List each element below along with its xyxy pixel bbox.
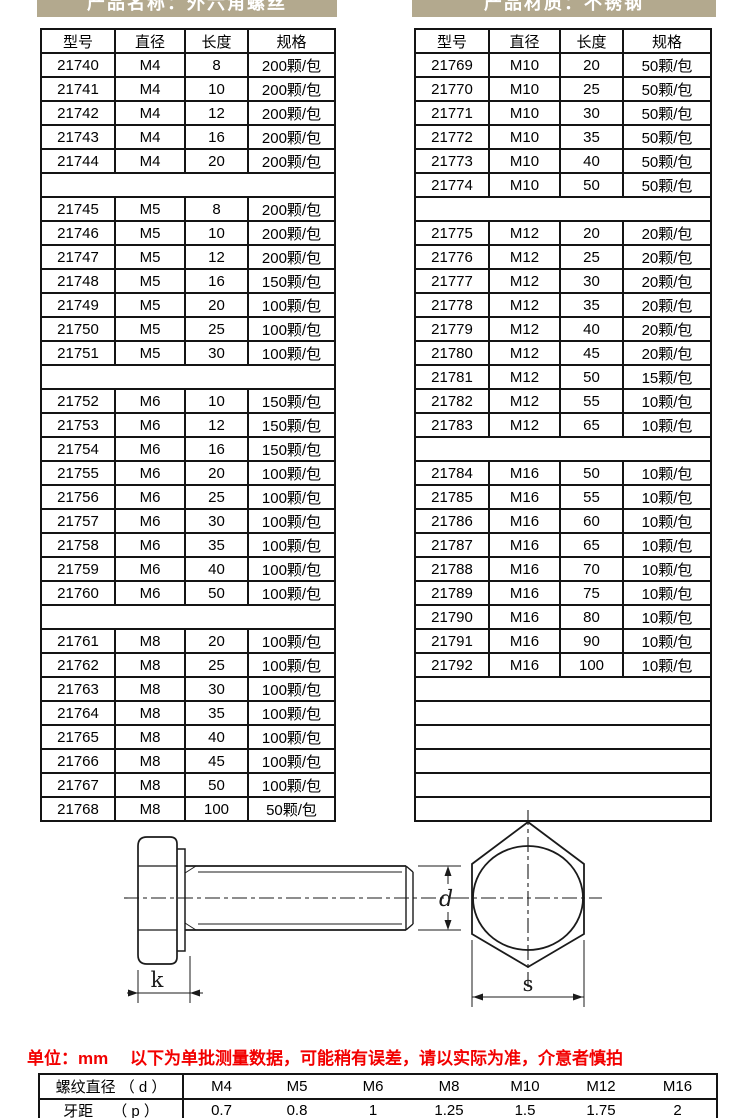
d-arrow-top bbox=[445, 866, 452, 876]
table-row: 21777M123020颗/包 bbox=[415, 269, 711, 293]
cell: 螺纹直径 （ d ） bbox=[39, 1074, 183, 1099]
cell: 0.8 bbox=[259, 1099, 335, 1118]
cell: M12 bbox=[489, 365, 560, 389]
cell: 21753 bbox=[41, 413, 115, 437]
cell: 30 bbox=[185, 509, 248, 533]
table-row: 21783M126510颗/包 bbox=[415, 413, 711, 437]
cell: 100颗/包 bbox=[248, 533, 335, 557]
cell: M6 bbox=[115, 557, 185, 581]
cell: 21759 bbox=[41, 557, 115, 581]
cell: M16 bbox=[489, 629, 560, 653]
table-row: 21763M830100颗/包 bbox=[41, 677, 335, 701]
cell: M12 bbox=[489, 317, 560, 341]
cell: 21772 bbox=[415, 125, 489, 149]
table-row: 21746M510200颗/包 bbox=[41, 221, 335, 245]
cell: 100颗/包 bbox=[248, 461, 335, 485]
column-header: 型号 bbox=[41, 29, 115, 53]
spacer-row bbox=[415, 437, 711, 461]
cell: 21790 bbox=[415, 605, 489, 629]
cell: 100颗/包 bbox=[248, 581, 335, 605]
column-header: 型号 bbox=[415, 29, 489, 53]
spacer-row bbox=[415, 701, 711, 725]
cell: 150颗/包 bbox=[248, 389, 335, 413]
cell: M6 bbox=[115, 533, 185, 557]
cell: M10 bbox=[489, 173, 560, 197]
cell: 150颗/包 bbox=[248, 413, 335, 437]
product-table-right: 型号直径长度规格21769M102050颗/包21770M102550颗/包21… bbox=[414, 28, 712, 822]
cell: 8 bbox=[185, 197, 248, 221]
cell: 21788 bbox=[415, 557, 489, 581]
cell: M16 bbox=[639, 1074, 717, 1099]
product-spec-sheet: 产品名称：外六角螺丝 产品材质：不锈钢 型号直径长度规格21740M48200颗… bbox=[0, 0, 750, 1118]
cell: M16 bbox=[489, 509, 560, 533]
cell: M6 bbox=[335, 1074, 411, 1099]
product-name-text: 产品名称：外六角螺丝 bbox=[87, 0, 287, 13]
cell: 30 bbox=[560, 101, 623, 125]
cell: M8 bbox=[411, 1074, 487, 1099]
cell: M4 bbox=[183, 1074, 259, 1099]
cell: 100颗/包 bbox=[248, 701, 335, 725]
table-row: 牙距 （ p ）0.70.811.251.51.752 bbox=[39, 1099, 717, 1118]
cell: 150颗/包 bbox=[248, 269, 335, 293]
column-header: 规格 bbox=[248, 29, 335, 53]
cell: M4 bbox=[115, 101, 185, 125]
cell: 21751 bbox=[41, 341, 115, 365]
cell: 20 bbox=[560, 53, 623, 77]
cell: 21764 bbox=[41, 701, 115, 725]
cell: 21785 bbox=[415, 485, 489, 509]
cell: 21774 bbox=[415, 173, 489, 197]
cell: 100颗/包 bbox=[248, 509, 335, 533]
table-row: 21748M516150颗/包 bbox=[41, 269, 335, 293]
cell: 50颗/包 bbox=[623, 149, 711, 173]
cell: 12 bbox=[185, 101, 248, 125]
cell: M10 bbox=[489, 77, 560, 101]
cell: M12 bbox=[489, 293, 560, 317]
cell: 21783 bbox=[415, 413, 489, 437]
cell: 10颗/包 bbox=[623, 653, 711, 677]
cell: M8 bbox=[115, 749, 185, 773]
cell: 10 bbox=[185, 389, 248, 413]
cell: M4 bbox=[115, 125, 185, 149]
table-row: 21762M825100颗/包 bbox=[41, 653, 335, 677]
cell: 1.5 bbox=[487, 1099, 563, 1118]
cell: 21778 bbox=[415, 293, 489, 317]
table-row: 21773M104050颗/包 bbox=[415, 149, 711, 173]
cell: 21756 bbox=[41, 485, 115, 509]
spacer-row bbox=[41, 365, 335, 389]
table-row: 21788M167010颗/包 bbox=[415, 557, 711, 581]
dimension-label-d: d bbox=[439, 887, 453, 912]
spacer-cell bbox=[415, 701, 711, 725]
cell: M12 bbox=[489, 221, 560, 245]
cell: 200颗/包 bbox=[248, 149, 335, 173]
cell: M4 bbox=[115, 53, 185, 77]
table-row: 21781M125015颗/包 bbox=[415, 365, 711, 389]
cell: M16 bbox=[489, 653, 560, 677]
cell: M5 bbox=[115, 341, 185, 365]
table-row: 21769M102050颗/包 bbox=[415, 53, 711, 77]
cell: 21760 bbox=[41, 581, 115, 605]
cell: 21750 bbox=[41, 317, 115, 341]
table-row: 21760M650100颗/包 bbox=[41, 581, 335, 605]
cell: 25 bbox=[185, 317, 248, 341]
cell: 21746 bbox=[41, 221, 115, 245]
table-row: 21759M640100颗/包 bbox=[41, 557, 335, 581]
cell: 21786 bbox=[415, 509, 489, 533]
table-row: 21784M165010颗/包 bbox=[415, 461, 711, 485]
cell: 21775 bbox=[415, 221, 489, 245]
cell: 35 bbox=[185, 701, 248, 725]
cell: 50 bbox=[560, 365, 623, 389]
cell: M16 bbox=[489, 461, 560, 485]
cell: 21754 bbox=[41, 437, 115, 461]
table-row: 21752M610150颗/包 bbox=[41, 389, 335, 413]
cell: M5 bbox=[259, 1074, 335, 1099]
table-row: 21774M105050颗/包 bbox=[415, 173, 711, 197]
table-row: 21776M122520颗/包 bbox=[415, 245, 711, 269]
spacer-cell bbox=[41, 605, 335, 629]
table-row: 21780M124520颗/包 bbox=[415, 341, 711, 365]
cell: 50颗/包 bbox=[623, 77, 711, 101]
cell: M12 bbox=[489, 389, 560, 413]
cell: 20颗/包 bbox=[623, 341, 711, 365]
cell: 牙距 （ p ） bbox=[39, 1099, 183, 1118]
cell: M10 bbox=[487, 1074, 563, 1099]
cell: 21780 bbox=[415, 341, 489, 365]
table-row: 21756M625100颗/包 bbox=[41, 485, 335, 509]
product-name-banner: 产品名称：外六角螺丝 bbox=[37, 0, 337, 17]
cell: 21770 bbox=[415, 77, 489, 101]
table-row: 21743M416200颗/包 bbox=[41, 125, 335, 149]
dimension-label-k: k bbox=[151, 968, 164, 992]
thread-spec-table: 螺纹直径 （ d ）M4M5M6M8M10M12M16牙距 （ p ）0.70.… bbox=[38, 1073, 718, 1118]
bolt-head-outline bbox=[138, 837, 177, 964]
cell: 25 bbox=[560, 245, 623, 269]
cell: 100颗/包 bbox=[248, 749, 335, 773]
cell: 21789 bbox=[415, 581, 489, 605]
cell: 100颗/包 bbox=[248, 317, 335, 341]
cell: 21743 bbox=[41, 125, 115, 149]
table-row: 螺纹直径 （ d ）M4M5M6M8M10M12M16 bbox=[39, 1074, 717, 1099]
table-row: 21790M168010颗/包 bbox=[415, 605, 711, 629]
cell: M12 bbox=[489, 245, 560, 269]
table-row: 21741M410200颗/包 bbox=[41, 77, 335, 101]
cell: 21765 bbox=[41, 725, 115, 749]
cell: 100颗/包 bbox=[248, 485, 335, 509]
cell: 45 bbox=[185, 749, 248, 773]
cell: 10颗/包 bbox=[623, 509, 711, 533]
spacer-cell bbox=[415, 749, 711, 773]
cell: M10 bbox=[489, 53, 560, 77]
spacer-row bbox=[41, 605, 335, 629]
cell: 100颗/包 bbox=[248, 677, 335, 701]
spacer-row bbox=[415, 197, 711, 221]
cell: 20颗/包 bbox=[623, 221, 711, 245]
cell: 21763 bbox=[41, 677, 115, 701]
header-row: 型号直径长度规格 bbox=[41, 29, 335, 53]
table-row: 21779M124020颗/包 bbox=[415, 317, 711, 341]
bolt-head-front-view: s bbox=[454, 810, 602, 1007]
cell: 65 bbox=[560, 413, 623, 437]
cell: M6 bbox=[115, 581, 185, 605]
table-row: 21745M58200颗/包 bbox=[41, 197, 335, 221]
cell: M4 bbox=[115, 149, 185, 173]
cell: 20颗/包 bbox=[623, 317, 711, 341]
bolt-side-view: d k bbox=[124, 837, 466, 1003]
table-row: 21772M103550颗/包 bbox=[415, 125, 711, 149]
cell: M5 bbox=[115, 269, 185, 293]
cell: 10颗/包 bbox=[623, 581, 711, 605]
cell: 20 bbox=[185, 629, 248, 653]
cell: 21787 bbox=[415, 533, 489, 557]
table-row: 21750M525100颗/包 bbox=[41, 317, 335, 341]
table-row: 21764M835100颗/包 bbox=[41, 701, 335, 725]
cell: 150颗/包 bbox=[248, 437, 335, 461]
table-row: 21786M166010颗/包 bbox=[415, 509, 711, 533]
cell: 21773 bbox=[415, 149, 489, 173]
table-row: 21785M165510颗/包 bbox=[415, 485, 711, 509]
cell: M12 bbox=[489, 413, 560, 437]
cell: M5 bbox=[115, 197, 185, 221]
cell: 21752 bbox=[41, 389, 115, 413]
cell: M16 bbox=[489, 485, 560, 509]
cell: 50颗/包 bbox=[623, 101, 711, 125]
cell: 50颗/包 bbox=[623, 173, 711, 197]
table-row: 21755M620100颗/包 bbox=[41, 461, 335, 485]
cell: M6 bbox=[115, 413, 185, 437]
cell: 20 bbox=[185, 149, 248, 173]
cell: 200颗/包 bbox=[248, 53, 335, 77]
cell: 100颗/包 bbox=[248, 653, 335, 677]
product-material-banner: 产品材质：不锈钢 bbox=[412, 0, 716, 17]
table-row: 21742M412200颗/包 bbox=[41, 101, 335, 125]
cell: M6 bbox=[115, 437, 185, 461]
cell: 20 bbox=[185, 461, 248, 485]
cell: 75 bbox=[560, 581, 623, 605]
cell: 1.75 bbox=[563, 1099, 639, 1118]
cell: 21757 bbox=[41, 509, 115, 533]
spacer-row bbox=[415, 725, 711, 749]
cell: 200颗/包 bbox=[248, 221, 335, 245]
cell: 21745 bbox=[41, 197, 115, 221]
spacer-cell bbox=[415, 437, 711, 461]
cell: 10颗/包 bbox=[623, 389, 711, 413]
cell: 10颗/包 bbox=[623, 533, 711, 557]
cell: M4 bbox=[115, 77, 185, 101]
cell: M8 bbox=[115, 725, 185, 749]
dimension-label-s: s bbox=[523, 972, 534, 996]
cell: 40 bbox=[185, 557, 248, 581]
cell: 10颗/包 bbox=[623, 629, 711, 653]
cell: 200颗/包 bbox=[248, 245, 335, 269]
cell: 100颗/包 bbox=[248, 725, 335, 749]
cell: M12 bbox=[489, 269, 560, 293]
table-row: 21753M612150颗/包 bbox=[41, 413, 335, 437]
cell: 50颗/包 bbox=[623, 53, 711, 77]
table-row: 21787M166510颗/包 bbox=[415, 533, 711, 557]
table-row: 21770M102550颗/包 bbox=[415, 77, 711, 101]
cell: 35 bbox=[560, 125, 623, 149]
cell: M6 bbox=[115, 389, 185, 413]
cell: 16 bbox=[185, 125, 248, 149]
d-arrow-bottom bbox=[445, 920, 452, 930]
spacer-cell bbox=[415, 677, 711, 701]
cell: 20颗/包 bbox=[623, 245, 711, 269]
cell: 16 bbox=[185, 269, 248, 293]
cell: 10颗/包 bbox=[623, 557, 711, 581]
cell: 25 bbox=[560, 77, 623, 101]
cell: 21779 bbox=[415, 317, 489, 341]
s-arrow-right bbox=[573, 994, 583, 1001]
k-arrow-left bbox=[128, 990, 138, 997]
cell: 70 bbox=[560, 557, 623, 581]
cell: M10 bbox=[489, 101, 560, 125]
table-row: 21775M122020颗/包 bbox=[415, 221, 711, 245]
cell: 21748 bbox=[41, 269, 115, 293]
cell: 10颗/包 bbox=[623, 413, 711, 437]
cell: M6 bbox=[115, 509, 185, 533]
cell: 21791 bbox=[415, 629, 489, 653]
table-row: 21792M1610010颗/包 bbox=[415, 653, 711, 677]
cell: 25 bbox=[185, 653, 248, 677]
cell: 200颗/包 bbox=[248, 101, 335, 125]
spacer-cell bbox=[415, 725, 711, 749]
cell: 2 bbox=[639, 1099, 717, 1118]
cell: M6 bbox=[115, 485, 185, 509]
cell: 21755 bbox=[41, 461, 115, 485]
cell: 21777 bbox=[415, 269, 489, 293]
cell: 35 bbox=[560, 293, 623, 317]
cell: 21758 bbox=[41, 533, 115, 557]
cell: 1.25 bbox=[411, 1099, 487, 1118]
cell: 16 bbox=[185, 437, 248, 461]
table-row: 21789M167510颗/包 bbox=[415, 581, 711, 605]
cell: 8 bbox=[185, 53, 248, 77]
column-header: 直径 bbox=[489, 29, 560, 53]
cell: 80 bbox=[560, 605, 623, 629]
cell: 55 bbox=[560, 389, 623, 413]
cell: 1 bbox=[335, 1099, 411, 1118]
measurement-note: 单位：mm 以下为单批测量数据，可能稍有误差，请以实际为准，介意者慎拍 bbox=[27, 1044, 727, 1069]
cell: 21766 bbox=[41, 749, 115, 773]
k-arrow-right bbox=[190, 990, 200, 997]
cell: 21782 bbox=[415, 389, 489, 413]
cell: M6 bbox=[115, 461, 185, 485]
table-row: 21757M630100颗/包 bbox=[41, 509, 335, 533]
table-row: 21791M169010颗/包 bbox=[415, 629, 711, 653]
table-row: 21765M840100颗/包 bbox=[41, 725, 335, 749]
spacer-cell bbox=[415, 197, 711, 221]
cell: 21776 bbox=[415, 245, 489, 269]
cell: 100颗/包 bbox=[248, 341, 335, 365]
cell: M16 bbox=[489, 533, 560, 557]
table-row: 21766M845100颗/包 bbox=[41, 749, 335, 773]
cell: 21784 bbox=[415, 461, 489, 485]
cell: 65 bbox=[560, 533, 623, 557]
cell: 40 bbox=[560, 317, 623, 341]
cell: 30 bbox=[560, 269, 623, 293]
cell: 55 bbox=[560, 485, 623, 509]
cell: 40 bbox=[185, 725, 248, 749]
cell: 12 bbox=[185, 413, 248, 437]
table-row: 21749M520100颗/包 bbox=[41, 293, 335, 317]
column-header: 直径 bbox=[115, 29, 185, 53]
cell: M12 bbox=[489, 341, 560, 365]
cell: 21744 bbox=[41, 149, 115, 173]
cell: 35 bbox=[185, 533, 248, 557]
cell: 200颗/包 bbox=[248, 197, 335, 221]
cell: 25 bbox=[185, 485, 248, 509]
cell: M8 bbox=[115, 629, 185, 653]
cell: 21749 bbox=[41, 293, 115, 317]
cell: 21761 bbox=[41, 629, 115, 653]
column-header: 长度 bbox=[560, 29, 623, 53]
cell: 30 bbox=[185, 677, 248, 701]
cell: 21747 bbox=[41, 245, 115, 269]
cell: M12 bbox=[563, 1074, 639, 1099]
cell: M8 bbox=[115, 701, 185, 725]
bolt-head-flange bbox=[177, 849, 185, 951]
cell: 20 bbox=[185, 293, 248, 317]
spacer-cell bbox=[41, 365, 335, 389]
table-row: 21758M635100颗/包 bbox=[41, 533, 335, 557]
cell: M5 bbox=[115, 293, 185, 317]
cell: 21742 bbox=[41, 101, 115, 125]
cell: M8 bbox=[115, 677, 185, 701]
cell: M10 bbox=[489, 149, 560, 173]
k-extension-lines bbox=[138, 956, 190, 1003]
cell: 100颗/包 bbox=[248, 629, 335, 653]
cell: 12 bbox=[185, 245, 248, 269]
cell: 21741 bbox=[41, 77, 115, 101]
cell: M16 bbox=[489, 557, 560, 581]
cell: 15颗/包 bbox=[623, 365, 711, 389]
cell: 0.7 bbox=[183, 1099, 259, 1118]
cell: 20颗/包 bbox=[623, 269, 711, 293]
cell: 10颗/包 bbox=[623, 461, 711, 485]
cell: 60 bbox=[560, 509, 623, 533]
table-row: 21744M420200颗/包 bbox=[41, 149, 335, 173]
cell: 50 bbox=[185, 581, 248, 605]
cell: 21762 bbox=[41, 653, 115, 677]
product-material-text: 产品材质：不锈钢 bbox=[484, 0, 644, 13]
header-row: 型号直径长度规格 bbox=[415, 29, 711, 53]
table-row: 21740M48200颗/包 bbox=[41, 53, 335, 77]
cell: 21781 bbox=[415, 365, 489, 389]
cell: 10颗/包 bbox=[623, 485, 711, 509]
cell: M16 bbox=[489, 605, 560, 629]
table-row: 21771M103050颗/包 bbox=[415, 101, 711, 125]
table-row: 21761M820100颗/包 bbox=[41, 629, 335, 653]
cell: 10 bbox=[185, 221, 248, 245]
table-row: 21778M123520颗/包 bbox=[415, 293, 711, 317]
cell: 20 bbox=[560, 221, 623, 245]
cell: 21792 bbox=[415, 653, 489, 677]
cell: 10颗/包 bbox=[623, 605, 711, 629]
bolt-technical-drawing: d k s bbox=[0, 780, 750, 1020]
cell: 30 bbox=[185, 341, 248, 365]
cell: M8 bbox=[115, 653, 185, 677]
cell: 21769 bbox=[415, 53, 489, 77]
cell: 45 bbox=[560, 341, 623, 365]
cell: M5 bbox=[115, 245, 185, 269]
cell: 50颗/包 bbox=[623, 125, 711, 149]
cell: 50 bbox=[560, 461, 623, 485]
cell: 100颗/包 bbox=[248, 557, 335, 581]
table-row: 21782M125510颗/包 bbox=[415, 389, 711, 413]
cell: 50 bbox=[560, 173, 623, 197]
